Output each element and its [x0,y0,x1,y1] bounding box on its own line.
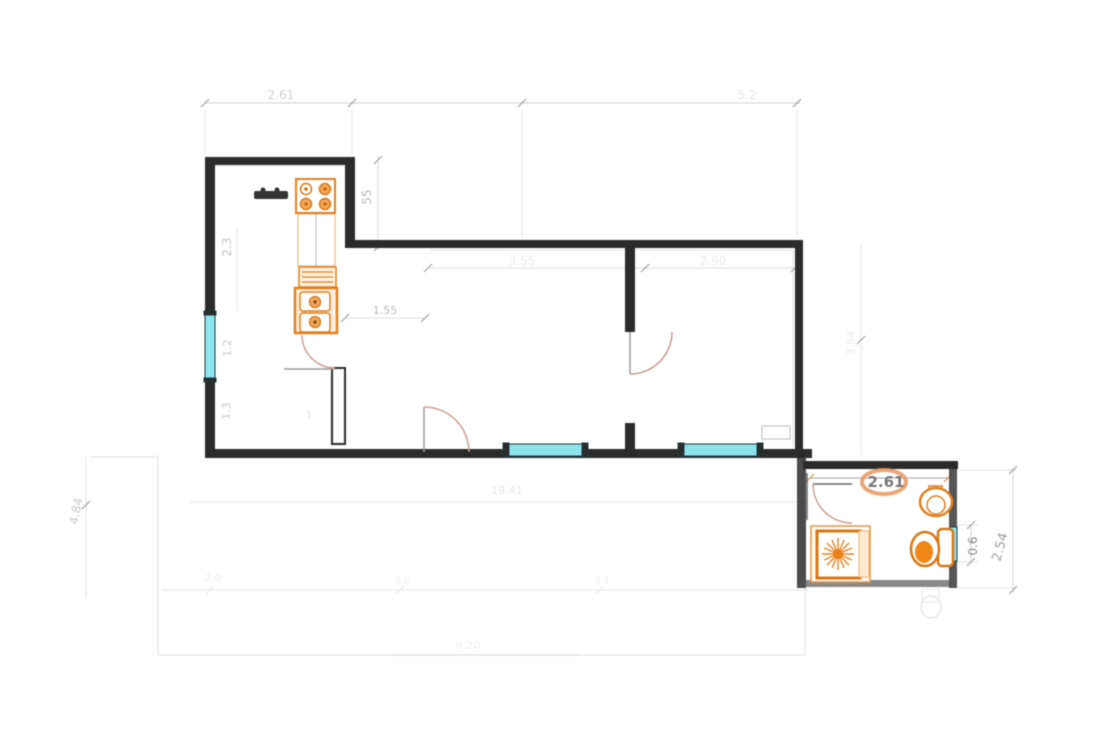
kitchen-door [284,335,335,369]
kitchen-left-wall-lower [205,378,215,455]
bidet [920,486,952,516]
entry-door-arc [424,407,469,452]
dim-kitchen-step: 55 [360,189,374,204]
toilet [911,529,953,566]
ghost-fixture [921,589,941,618]
shower-tray [811,526,870,582]
bedroom-window-cap-right [757,443,763,456]
dim-hall-small: 1 [306,410,312,421]
kitchen-top-wall [205,157,355,165]
stove [296,179,335,213]
wall-pier [762,426,790,439]
living-window-cap-left [503,443,509,456]
dim-left-height: 4.84 [66,497,85,526]
kitchen-table [254,188,288,200]
bathroom-top-wall [803,461,958,469]
bathroom-left-wall [797,455,806,588]
living-window [508,444,583,456]
dim-terrace-seg-a: 2.0 [205,573,221,584]
kitchen-counter [298,214,335,266]
dim-hall-width: 1.55 [373,304,398,317]
dim-kitchen-lower: 1.3 [220,402,233,420]
dim-top-right-segment: 5.2 [737,88,756,102]
drainer [299,267,336,287]
kitchen-fixtures [254,179,337,333]
dim-bedroom-height: 3.84 [845,331,858,356]
bathroom-door [813,484,852,523]
kitchen-window [205,315,215,378]
bedroom-window-cap-left [678,443,684,456]
right-wall [795,240,803,458]
living-top-wall [345,240,803,248]
bedroom-door [630,332,672,374]
bedroom-door-arc [630,332,672,374]
bedroom-window [683,444,758,456]
dim-terrace-seg-b: 3.6 [394,576,410,587]
kitchen-right-wall [345,157,355,248]
floor-plan: 2.61 5.2 55 2.3 1.2 1.3 1.55 1 3.55 2.90… [0,0,1109,741]
kitchen-left-wall-upper [205,157,215,315]
bathroom-door-arc [813,484,852,523]
kitchen-door-arc [302,335,335,368]
partition-wall-upper [625,248,635,332]
bathroom-fixtures [811,470,953,618]
dim-kitchen-top-width: 2.61 [268,88,295,102]
dim-living-width: 3.55 [509,254,536,268]
dim-bathroom-height: 2.54 [990,531,1012,563]
terrace-dimension-line [162,586,808,655]
kitchen-window-cap-bottom [204,378,216,382]
partition-wall-lower [625,423,635,449]
hallway-wall [332,368,345,444]
entry-door [424,407,469,452]
dim-terrace-seg-c: 3.1 [594,576,610,587]
dim-bedroom-width: 2.90 [700,254,727,268]
dim-bathroom-width: 2.61 [867,473,904,491]
dim-bathroom-window: 0.6 [966,536,980,555]
dim-terrace-width: 9.20 [456,639,481,652]
dimension-lines [205,103,1013,592]
dim-kitchen-window: 1.2 [221,339,234,357]
terrace-outline [158,455,808,655]
dim-terrace-area: 19.41 [491,484,523,497]
living-window-cap-right [582,443,588,456]
dim-kitchen-upper-height: 2.3 [220,237,234,256]
kitchen-window-cap-top [204,311,216,315]
double-sink [295,288,337,333]
